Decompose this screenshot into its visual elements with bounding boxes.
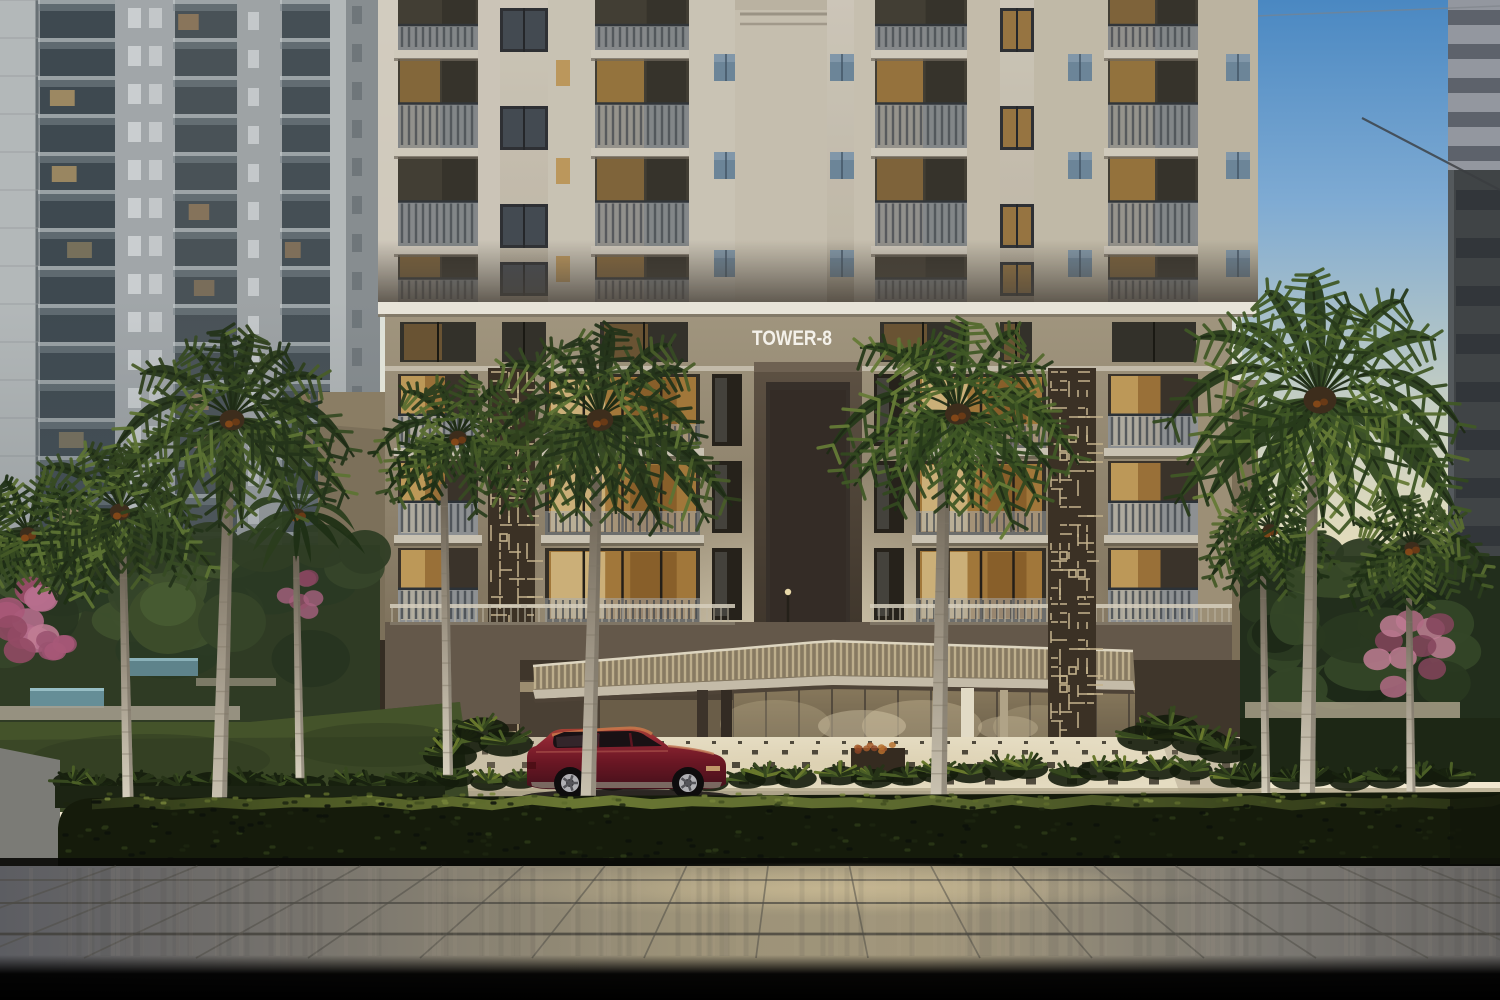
svg-text:TOWER-8: TOWER-8 (752, 327, 832, 350)
